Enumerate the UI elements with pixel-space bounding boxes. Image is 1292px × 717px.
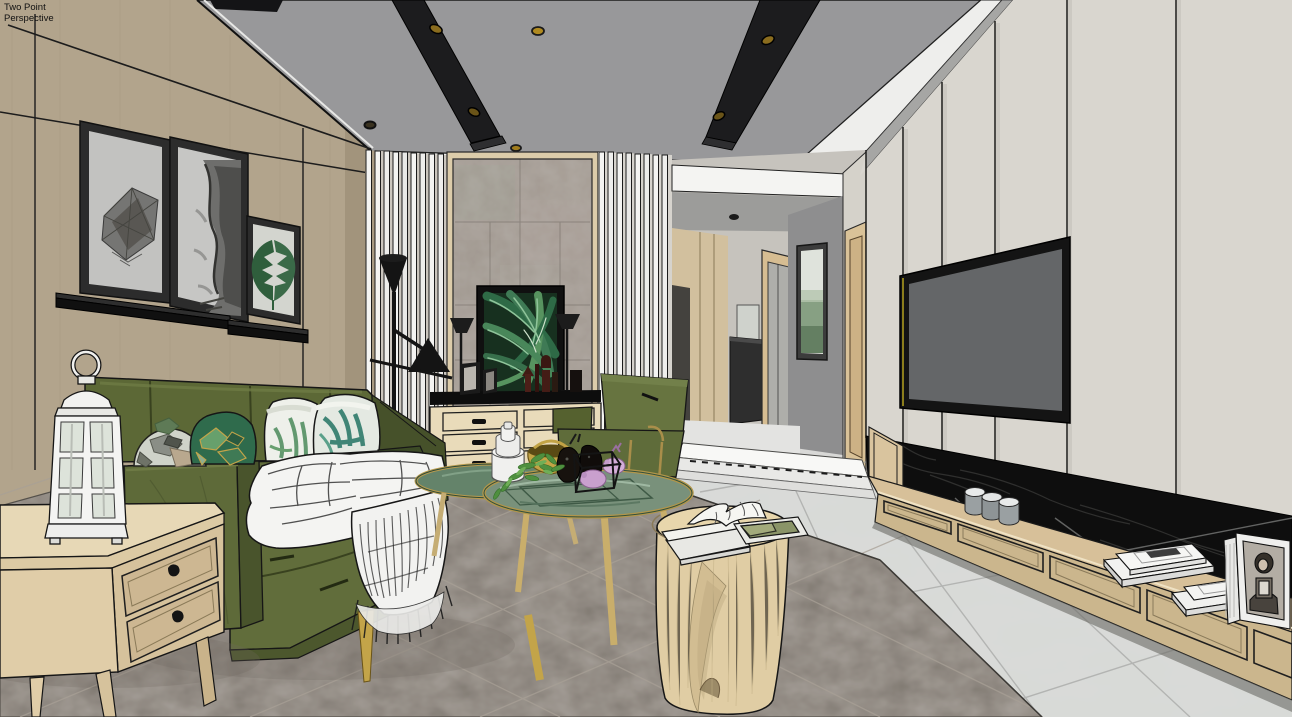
svg-text:Perspective: Perspective	[4, 13, 54, 24]
svg-text:Two Point: Two Point	[4, 2, 46, 13]
